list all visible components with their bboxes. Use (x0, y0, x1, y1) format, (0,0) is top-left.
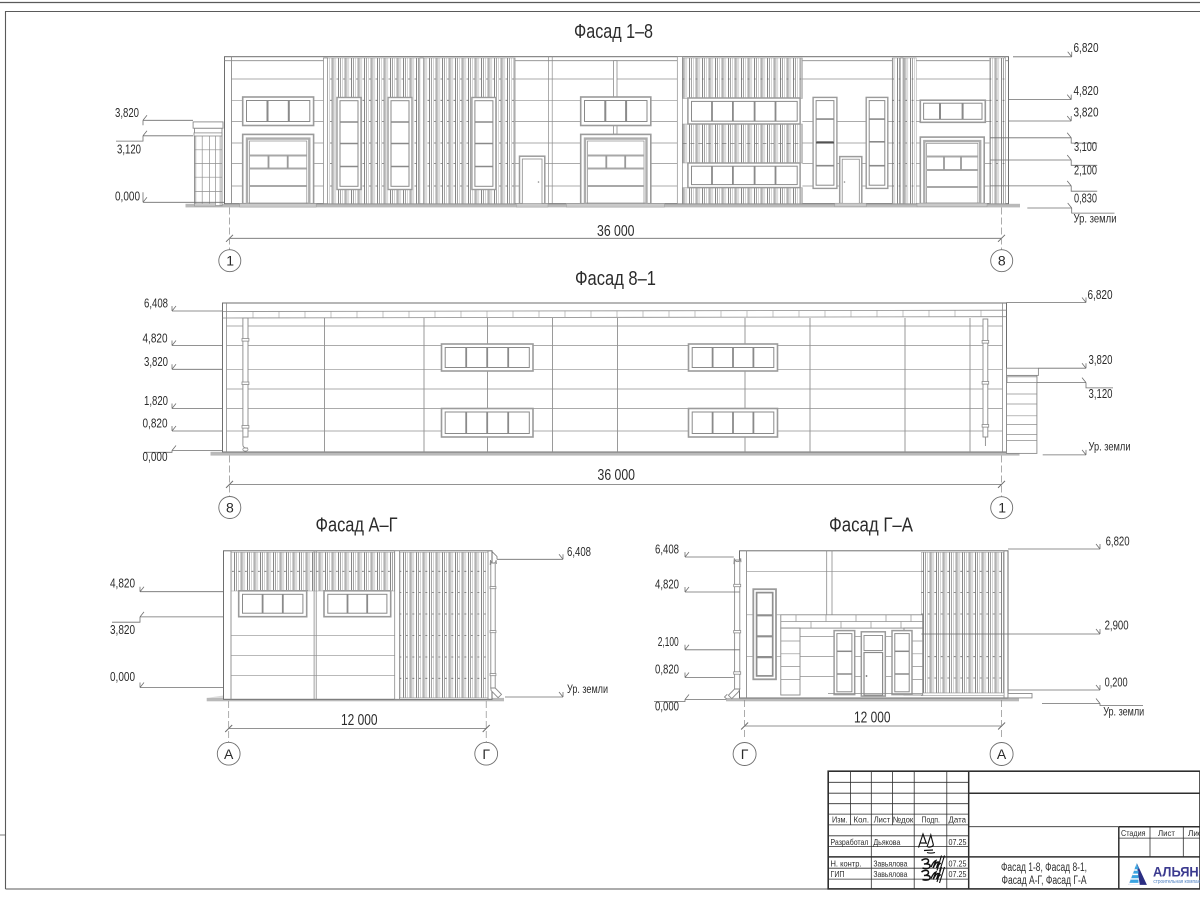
svg-text:0,000: 0,000 (143, 450, 168, 464)
svg-text:Завьялова: Завьялова (873, 869, 907, 879)
svg-text:Г: Г (482, 746, 490, 762)
svg-text:6,408: 6,408 (655, 543, 679, 557)
svg-text:07.25: 07.25 (949, 869, 967, 879)
svg-text:Фасад А–Г: Фасад А–Г (316, 515, 398, 537)
svg-text:12 000: 12 000 (854, 710, 891, 727)
svg-text:Фасад А-Г, Фасад Г-А: Фасад А-Г, Фасад Г-А (1002, 875, 1087, 887)
svg-text:6,820: 6,820 (1088, 288, 1113, 302)
svg-text:Г: Г (741, 746, 749, 762)
svg-text:0,000: 0,000 (115, 190, 140, 204)
svg-text:Фасад Г–А: Фасад Г–А (829, 515, 914, 537)
svg-text:3,820: 3,820 (115, 106, 139, 120)
svg-text:№док: №док (893, 815, 914, 825)
svg-text:1,820: 1,820 (144, 394, 168, 408)
svg-text:0,830: 0,830 (1074, 192, 1097, 206)
svg-text:Н. контр.: Н. контр. (831, 858, 862, 868)
svg-text:0,820: 0,820 (143, 417, 168, 431)
svg-text:А: А (997, 746, 1007, 762)
svg-text:6,820: 6,820 (1074, 41, 1099, 55)
svg-text:4,820: 4,820 (1074, 84, 1099, 98)
svg-text:Разработал: Разработал (831, 837, 869, 847)
svg-text:Фасад 1–8: Фасад 1–8 (574, 21, 653, 43)
svg-text:07.25: 07.25 (949, 837, 967, 847)
svg-text:6,408: 6,408 (567, 545, 591, 559)
svg-text:2,900: 2,900 (1105, 618, 1129, 632)
svg-text:4,820: 4,820 (110, 576, 135, 590)
svg-text:1: 1 (226, 253, 234, 269)
svg-text:3,120: 3,120 (117, 143, 141, 157)
svg-text:Кол.: Кол. (854, 815, 870, 825)
svg-text:Фасад 1-8, Фасад 8-1,: Фасад 1-8, Фасад 8-1, (1001, 862, 1087, 874)
svg-text:3,820: 3,820 (1074, 106, 1099, 120)
svg-text:0,000: 0,000 (110, 670, 135, 684)
svg-text:3,820: 3,820 (110, 623, 135, 637)
svg-text:Лис: Лис (1188, 828, 1200, 838)
svg-text:6,820: 6,820 (1106, 534, 1130, 548)
svg-text:0,820: 0,820 (655, 662, 679, 676)
svg-text:2,100: 2,100 (658, 635, 679, 649)
svg-text:Ур. земли: Ур. земли (1074, 214, 1117, 226)
svg-text:2,100: 2,100 (1074, 164, 1097, 178)
svg-text:3,820: 3,820 (144, 355, 168, 369)
svg-text:Подп.: Подп. (922, 815, 941, 825)
svg-text:строительная компания: строительная компания (1153, 879, 1200, 885)
svg-text:Завьялова: Завьялова (873, 858, 907, 868)
svg-text:АЛЬЯНС: АЛЬЯНС (1153, 864, 1200, 880)
svg-text:ГИП: ГИП (831, 869, 845, 879)
svg-text:А: А (224, 746, 234, 762)
svg-text:07.25: 07.25 (949, 858, 967, 868)
svg-text:Лист: Лист (1158, 828, 1175, 838)
svg-text:Изм.: Изм. (832, 815, 848, 825)
svg-text:Лист: Лист (874, 815, 891, 825)
svg-text:3,120: 3,120 (1089, 387, 1113, 401)
svg-text:0,000: 0,000 (655, 700, 679, 714)
svg-text:6,408: 6,408 (144, 297, 168, 311)
svg-text:36 000: 36 000 (598, 467, 636, 484)
svg-text:4,820: 4,820 (143, 332, 168, 346)
svg-text:Ур. земли: Ур. земли (567, 684, 608, 696)
svg-text:8: 8 (226, 499, 234, 515)
svg-text:36 000: 36 000 (597, 223, 635, 240)
svg-text:0,200: 0,200 (1105, 675, 1128, 689)
svg-text:Дата: Дата (949, 815, 967, 825)
svg-text:Дьякова: Дьякова (873, 837, 900, 847)
svg-text:12 000: 12 000 (341, 712, 378, 729)
svg-text:4,820: 4,820 (655, 578, 679, 592)
svg-text:Ур. земли: Ур. земли (1103, 706, 1144, 718)
svg-text:Ур. земли: Ур. земли (1089, 442, 1131, 454)
svg-text:8: 8 (998, 253, 1006, 269)
svg-text:3,100: 3,100 (1074, 140, 1097, 154)
svg-text:1: 1 (998, 500, 1006, 516)
svg-text:Фасад 8–1: Фасад 8–1 (575, 268, 656, 290)
svg-text:Стадия: Стадия (1121, 828, 1146, 838)
svg-text:3,820: 3,820 (1089, 353, 1113, 367)
